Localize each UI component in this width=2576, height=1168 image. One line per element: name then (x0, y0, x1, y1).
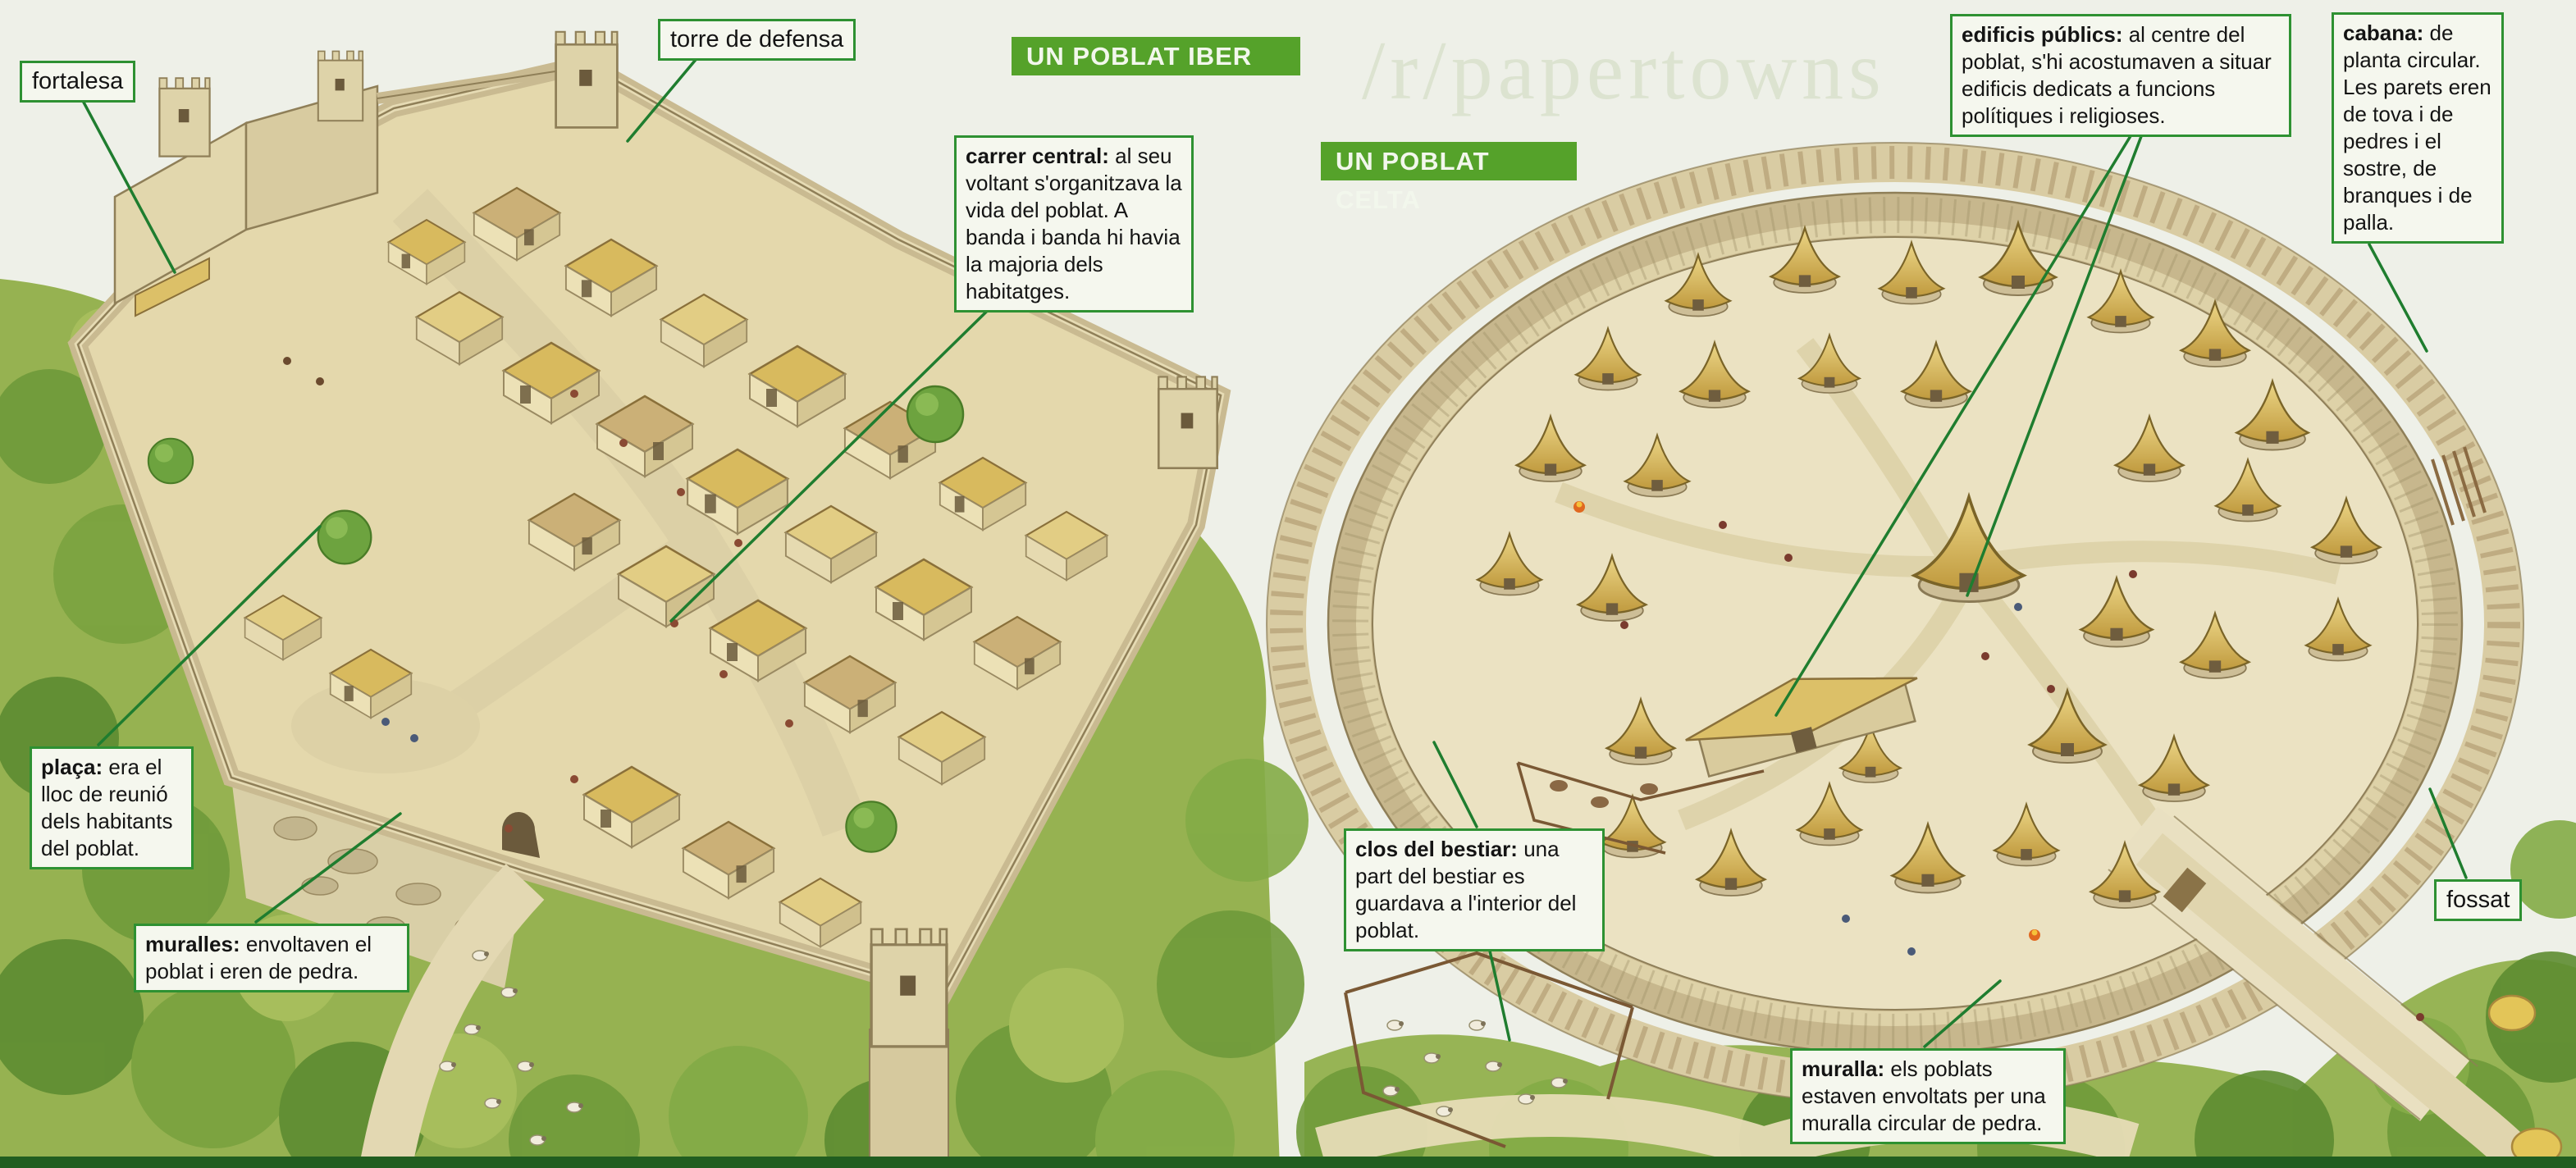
fortress-tower-icon (159, 78, 209, 156)
label-cabana-term: cabana: (2343, 21, 2423, 45)
label-edificis-publics: edificis públics: al centre del poblat, … (1950, 14, 2291, 137)
watermark: /r/papertowns (1362, 23, 1886, 119)
celta-village-illustration (1267, 143, 2576, 1168)
label-cabana-desc: de planta circular. Les parets eren de t… (2343, 21, 2492, 235)
iber-bottom-tower-base (870, 1029, 948, 1165)
label-muralla-term: muralla: (1802, 1056, 1884, 1081)
page-bottom-strip (0, 1157, 2576, 1168)
iber-title-banner: UN POBLAT IBER (1012, 37, 1300, 75)
double-page-illustration (0, 0, 2576, 1168)
label-carrer-central: carrer central: al seu voltant s'organit… (954, 135, 1194, 313)
label-placa: plaça: era el lloc de reunió dels habita… (30, 746, 194, 869)
label-fortalesa: fortalesa (20, 61, 135, 103)
label-clos-del-bestiar: clos del bestiar: una part del bestiar e… (1344, 828, 1605, 951)
iber-defense-tower-right (1158, 376, 1217, 468)
label-fossat: fossat (2434, 879, 2522, 921)
label-muralla: muralla: els poblats estaven envoltats p… (1790, 1048, 2066, 1144)
iber-defense-tower-top (556, 32, 618, 128)
label-carrer-central-term: carrer central: (966, 144, 1109, 168)
label-torre-de-defensa: torre de defensa (658, 19, 856, 61)
label-clos-del-bestiar-term: clos del bestiar: (1355, 837, 1518, 861)
celta-title-banner: UN POBLAT CELTA (1321, 142, 1577, 180)
label-muralles: muralles: envoltaven el poblat i eren de… (134, 924, 409, 992)
page: /r/papertowns UN POBLAT IBER UN POBLAT C… (0, 0, 2576, 1168)
label-placa-term: plaça: (41, 755, 103, 779)
label-muralles-term: muralles: (145, 932, 240, 956)
label-cabana: cabana: de planta circular. Les parets e… (2332, 12, 2504, 244)
iber-defense-tower-bottom (871, 929, 947, 1047)
label-edificis-publics-term: edificis públics: (1962, 22, 2123, 47)
fortress-tower-icon (318, 51, 363, 121)
